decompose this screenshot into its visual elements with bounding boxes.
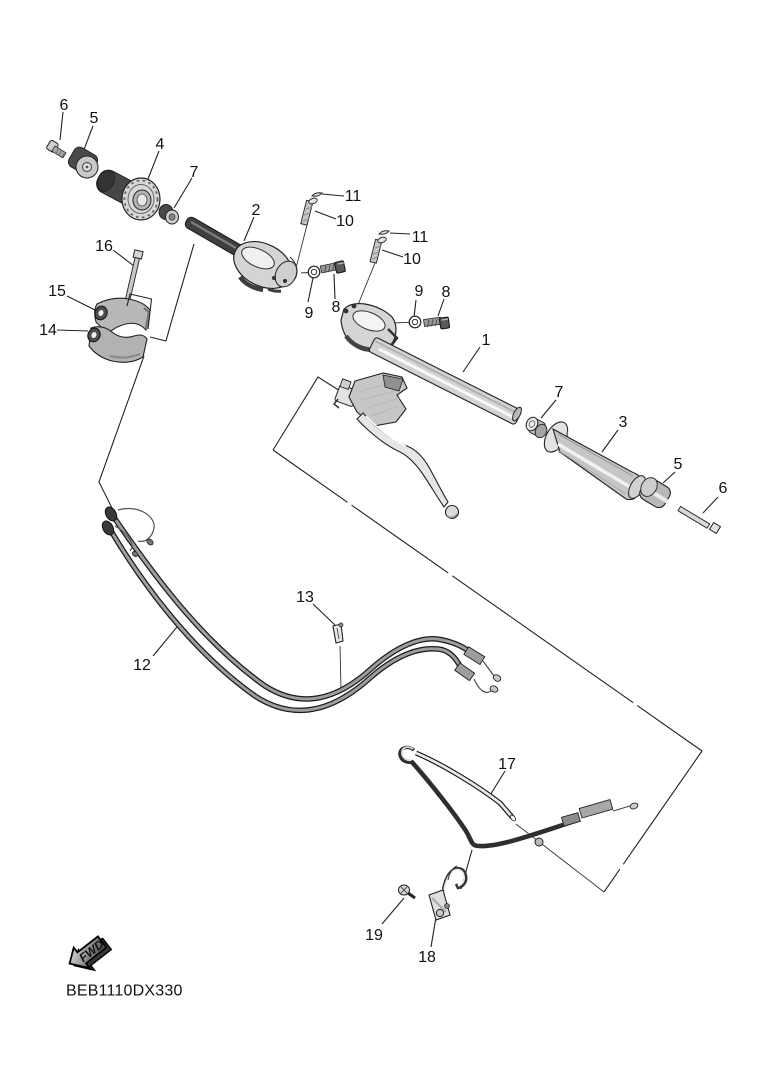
svg-text:10: 10 — [336, 213, 354, 230]
svg-text:7: 7 — [555, 384, 564, 401]
svg-text:16: 16 — [95, 238, 113, 255]
svg-text:10: 10 — [403, 251, 421, 268]
svg-text:6: 6 — [719, 480, 728, 497]
svg-text:14: 14 — [39, 322, 57, 339]
svg-text:18: 18 — [418, 949, 436, 966]
svg-text:5: 5 — [674, 456, 683, 473]
svg-text:19: 19 — [365, 927, 383, 944]
svg-text:13: 13 — [296, 589, 314, 606]
svg-text:3: 3 — [619, 414, 628, 431]
svg-text:1: 1 — [482, 332, 491, 349]
svg-text:8: 8 — [332, 299, 341, 316]
svg-text:17: 17 — [498, 756, 516, 773]
svg-text:15: 15 — [48, 283, 66, 300]
svg-text:4: 4 — [156, 136, 165, 153]
svg-text:6: 6 — [60, 97, 69, 114]
svg-text:11: 11 — [412, 229, 429, 246]
svg-text:2: 2 — [252, 202, 261, 219]
svg-text:9: 9 — [305, 305, 314, 322]
svg-text:9: 9 — [415, 283, 424, 300]
svg-text:BEB1110DX330: BEB1110DX330 — [66, 983, 183, 1000]
svg-text:12: 12 — [133, 657, 151, 674]
svg-text:5: 5 — [90, 110, 99, 127]
svg-text:8: 8 — [442, 284, 451, 301]
svg-text:11: 11 — [345, 188, 362, 205]
svg-text:7: 7 — [190, 164, 199, 181]
